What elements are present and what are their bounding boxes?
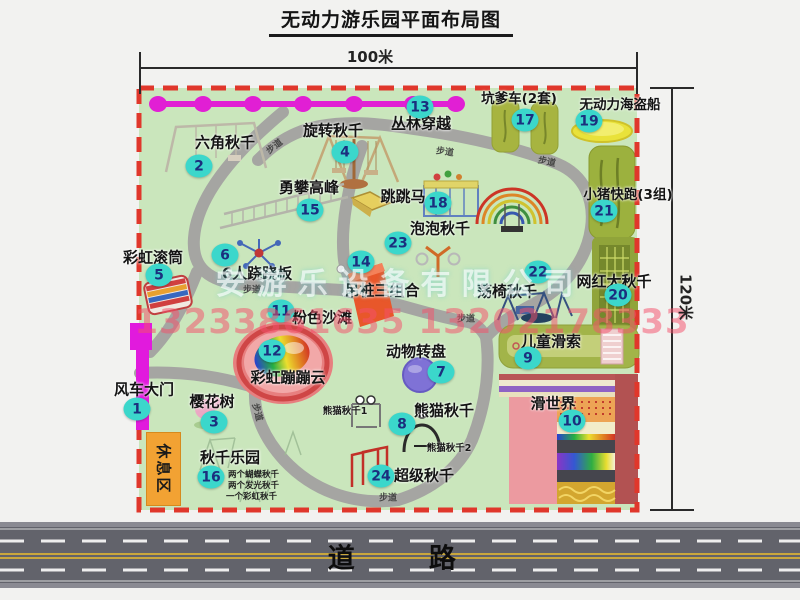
walkway-label-7: 步道 xyxy=(379,491,397,504)
sub-label-panda1: 熊猫秋千1 xyxy=(323,403,368,417)
label-rotating-swing: 旋转秋千 xyxy=(303,120,363,141)
rest-area: 休息区 xyxy=(146,432,181,506)
badge-15: 15 xyxy=(297,199,324,222)
badge-5: 5 xyxy=(146,264,173,287)
label-hexagon-swing: 六角秋千 xyxy=(195,132,255,153)
road-label: 道 路 xyxy=(328,537,489,576)
badge-18: 18 xyxy=(425,192,452,215)
badge-10: 10 xyxy=(559,410,586,433)
walkway-label-2: 步道 xyxy=(435,143,455,158)
phone-watermark: 13233861635 13202178333 xyxy=(134,302,689,342)
company-watermark: 安游乐设备有限公司 xyxy=(216,259,585,303)
badge-24: 24 xyxy=(368,465,395,488)
label-rainbow-bounce-cloud: 彩虹蹦蹦云 xyxy=(250,367,325,388)
label-jump-horse: 跳跳马 xyxy=(380,186,425,207)
badge-7: 7 xyxy=(428,361,455,384)
label-swing-park: 秋千乐园 xyxy=(200,447,260,468)
badge-17: 17 xyxy=(512,109,539,132)
page-title: 无动力游乐园平面布局图 xyxy=(269,5,513,37)
label-climbing-peak: 勇攀高峰 xyxy=(279,177,339,198)
sub-label-panda2: 熊猫秋千2 xyxy=(427,440,472,454)
label-windmill-gate: 风车大门 xyxy=(114,379,174,400)
label-pit-cart: 坑爹车(2套) xyxy=(481,87,557,107)
rest-area-label: 休息区 xyxy=(153,443,174,494)
label-panda-swing: 熊猫秋千 xyxy=(414,400,474,421)
badge-4: 4 xyxy=(332,141,359,164)
badge-19: 19 xyxy=(576,110,603,133)
label-cherry-tree: 樱花树 xyxy=(189,391,234,412)
label-bubble-swing: 泡泡秋千 xyxy=(410,218,470,239)
badge-12: 12 xyxy=(259,340,286,363)
badge-13: 13 xyxy=(407,96,434,119)
badge-21: 21 xyxy=(591,200,618,223)
badge-2: 2 xyxy=(186,155,213,178)
label-animal-carousel: 动物转盘 xyxy=(386,341,446,362)
park-layout-map: 无动力游乐园平面布局图 100米 120米 休息区 风车大门 六角秋千 樱花树 … xyxy=(0,0,800,600)
badge-16: 16 xyxy=(198,466,225,489)
badge-9: 9 xyxy=(515,347,542,370)
label-super-swing: 超级秋千 xyxy=(394,465,454,486)
badge-1: 1 xyxy=(124,398,151,421)
badge-8: 8 xyxy=(389,413,416,436)
badge-3: 3 xyxy=(201,411,228,434)
badge-23: 23 xyxy=(385,232,412,255)
swing-note-3: 一个彩虹秋千 xyxy=(226,490,277,502)
width-dimension-label: 100米 xyxy=(347,46,393,67)
height-dimension-label: 120米 xyxy=(676,274,697,320)
